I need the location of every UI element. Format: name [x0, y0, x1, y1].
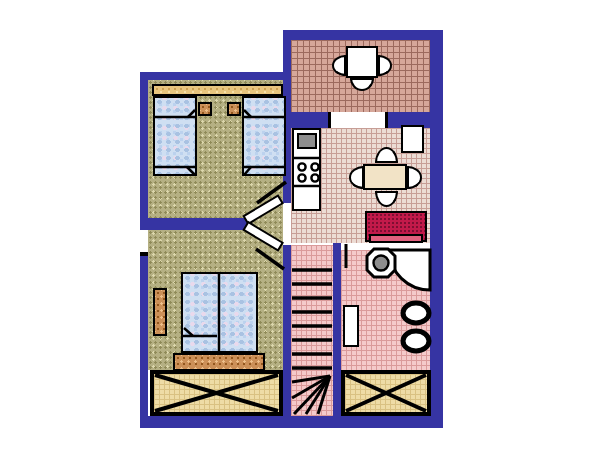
balcony-right-box [341, 370, 431, 416]
wall-terrace-top [283, 30, 443, 40]
foot-bench [173, 353, 265, 371]
wardrobe-shelf [152, 84, 283, 96]
terrace-door-opening [331, 112, 385, 128]
wall-center-lower [283, 245, 291, 428]
bathroom-radiator [343, 305, 359, 347]
living-cabinet [153, 288, 167, 336]
wall-left-lower [140, 256, 148, 428]
balcony-left-box [150, 370, 283, 416]
wall-bedroom-living-divider [140, 218, 245, 230]
kitchen-sink-basin [297, 133, 317, 149]
single-bed-left [153, 96, 197, 176]
wall-terrace-kitchen-left [291, 112, 328, 128]
staircase-floor [291, 245, 333, 416]
side-table [401, 125, 424, 153]
wall-bottom [140, 416, 443, 428]
single-bed-right [242, 96, 286, 176]
terrace-table [346, 46, 378, 78]
wall-left-upper [140, 72, 148, 222]
wall-right [430, 30, 443, 428]
red-sideboard-front [369, 234, 423, 243]
nightstand-right [227, 102, 241, 116]
dining-table [363, 164, 407, 190]
double-bed [181, 272, 258, 353]
wall-top-left-block [140, 72, 290, 80]
floor-plan [0, 0, 600, 450]
nightstand-left [198, 102, 212, 116]
wall-bathroom-left [333, 243, 341, 416]
